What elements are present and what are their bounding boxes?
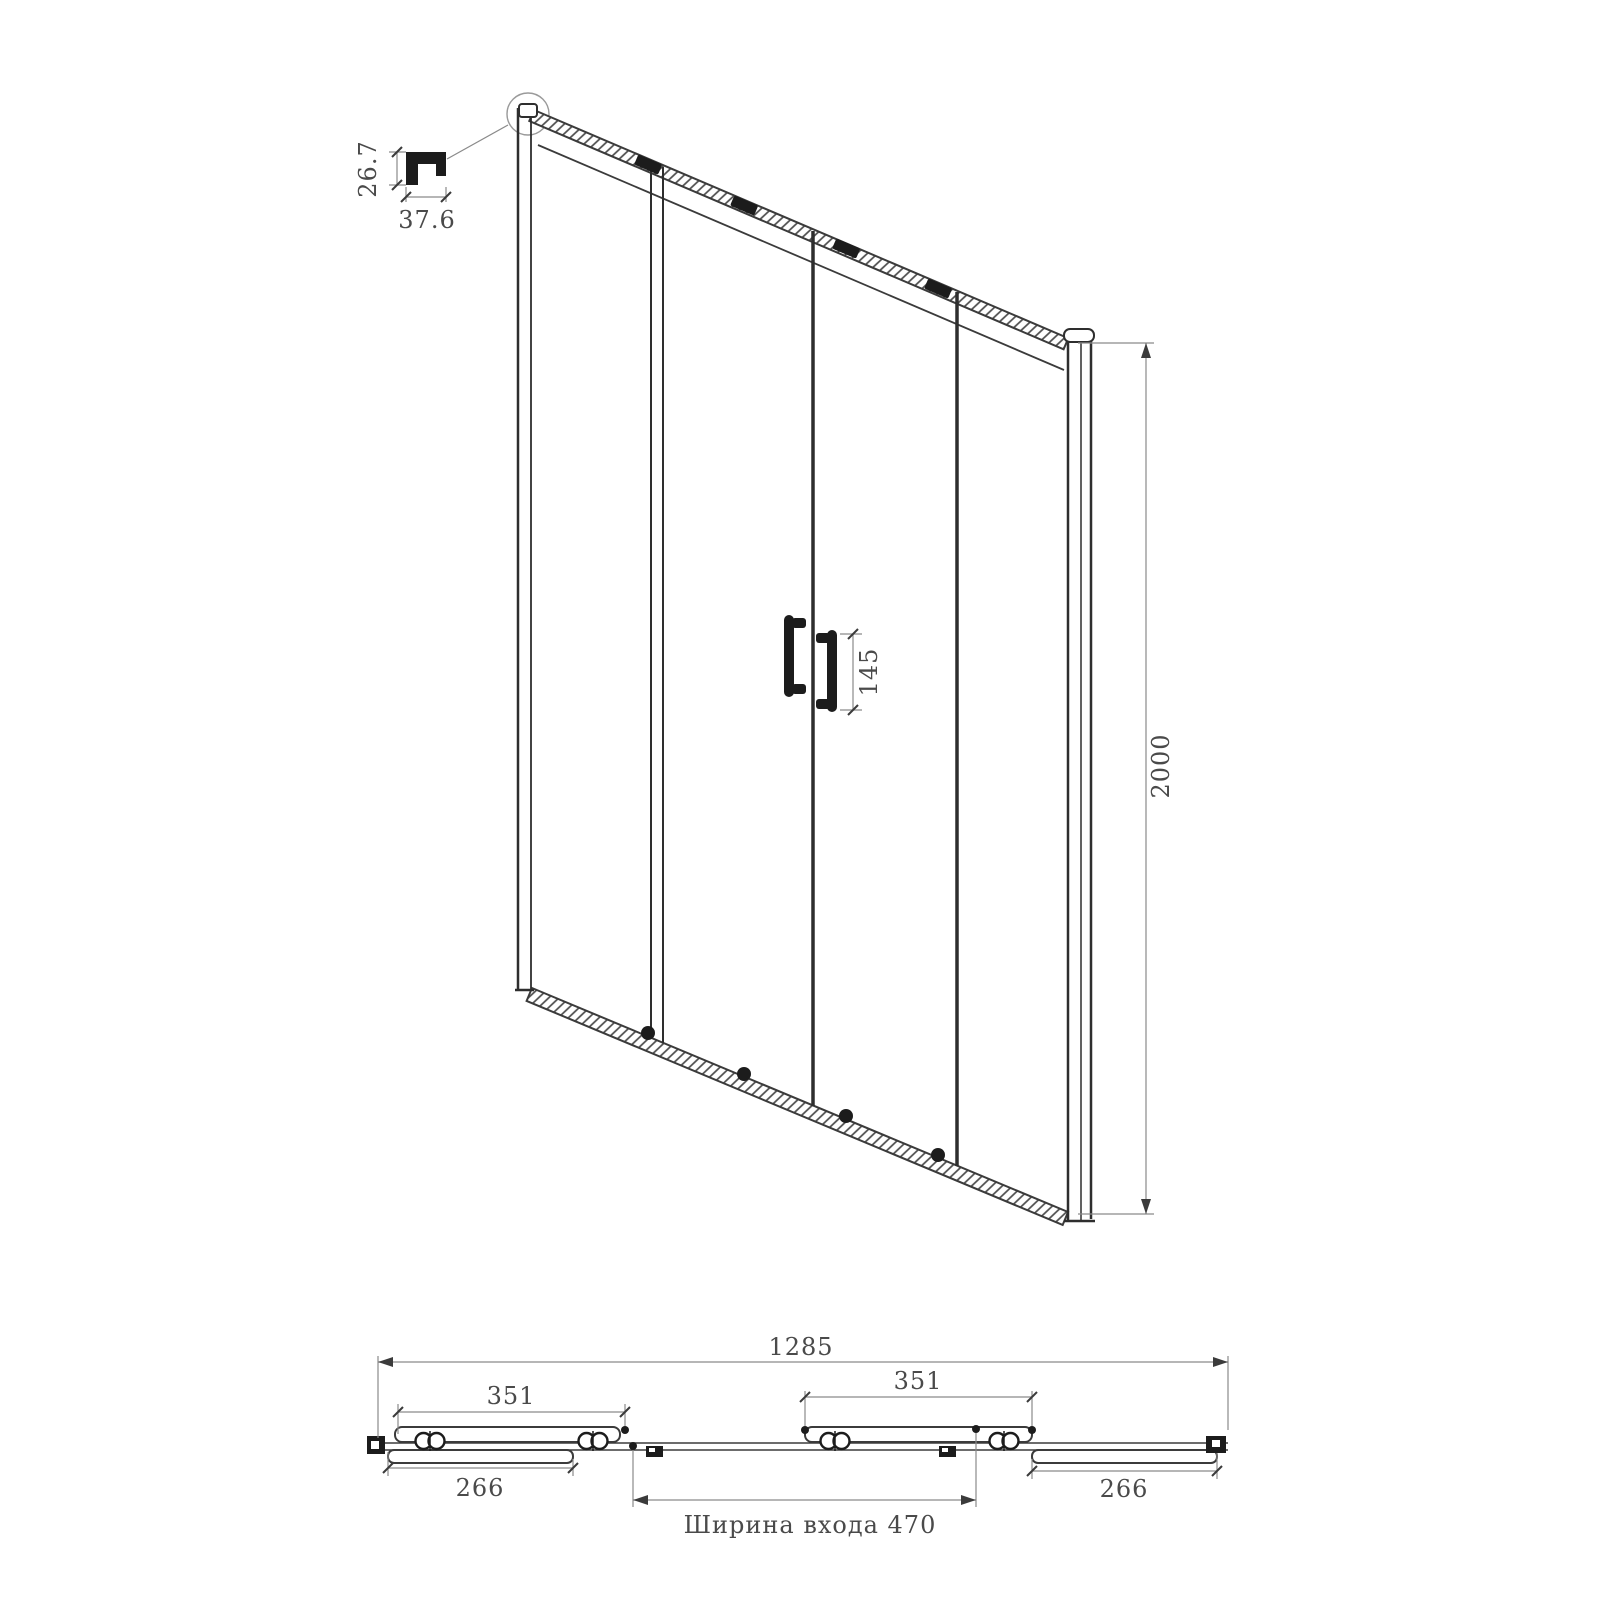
fixed-panel-left: [388, 1450, 573, 1463]
arrow-overall-left: [378, 1357, 393, 1367]
dim-label-profile-width: 37.6: [398, 206, 455, 234]
left-frame-profile: [515, 104, 537, 990]
drawing-svg: 26.7 37.6: [0, 0, 1600, 1600]
profile-section-glyph: [406, 152, 446, 185]
handle-right: [816, 630, 837, 712]
handle-left: [784, 615, 806, 697]
roller-4: [990, 1431, 1019, 1451]
arrow-height-top: [1141, 343, 1151, 358]
glass-top-edge: [538, 145, 1064, 370]
dim-label-entrance: Ширина входа 470: [684, 1511, 937, 1539]
roller-2: [579, 1431, 608, 1451]
dim-label-door-height: 2000: [1147, 733, 1175, 798]
dim-point-slider-left: [621, 1426, 629, 1434]
track-rails: [380, 1443, 1228, 1450]
front-view: 145 2000: [507, 93, 1175, 1225]
dim-point-slider-right-b: [1028, 1426, 1036, 1434]
roller-1: [416, 1431, 445, 1451]
arrow-height-bottom: [1141, 1199, 1151, 1214]
dim-label-overall-width: 1285: [768, 1333, 833, 1361]
roller-3: [821, 1431, 850, 1451]
arrow-overall-right: [1213, 1357, 1228, 1367]
dim-label-slider-left: 351: [487, 1382, 536, 1410]
arrow-entrance-left: [633, 1495, 648, 1505]
arrow-entrance-right: [961, 1495, 976, 1505]
dim-point-entrance-left: [629, 1442, 637, 1450]
dim-label-slider-right: 351: [894, 1367, 943, 1395]
guide-clip-left: [646, 1446, 663, 1457]
wall-bracket-left: [367, 1436, 385, 1454]
dim-label-fixed-right: 266: [1100, 1475, 1149, 1503]
top-rail: [529, 110, 1068, 349]
dim-profile-width: [401, 187, 451, 202]
dim-profile-height: [389, 147, 406, 190]
wall-bracket-right: [1206, 1436, 1226, 1453]
profile-detail: 26.7 37.6: [354, 125, 508, 234]
detail-leader-line: [447, 125, 508, 159]
dim-slider-right: [800, 1391, 1037, 1429]
plan-view: 1285 351 351 266: [367, 1333, 1228, 1539]
fixed-panel-right: [1032, 1450, 1217, 1463]
technical-drawing-page: 26.7 37.6: [0, 0, 1600, 1600]
dim-point-entrance-right: [972, 1425, 980, 1433]
panel-dividers: [651, 162, 957, 1166]
dim-point-slider-right-a: [801, 1426, 809, 1434]
bottom-rail: [527, 988, 1068, 1225]
dim-label-handle: 145: [855, 648, 883, 697]
guide-clip-right: [939, 1446, 956, 1457]
dim-door-height: [1078, 343, 1154, 1214]
dim-label-profile-height: 26.7: [354, 140, 382, 197]
right-frame-profile: [1064, 329, 1095, 1221]
dim-label-fixed-left: 266: [456, 1474, 505, 1502]
